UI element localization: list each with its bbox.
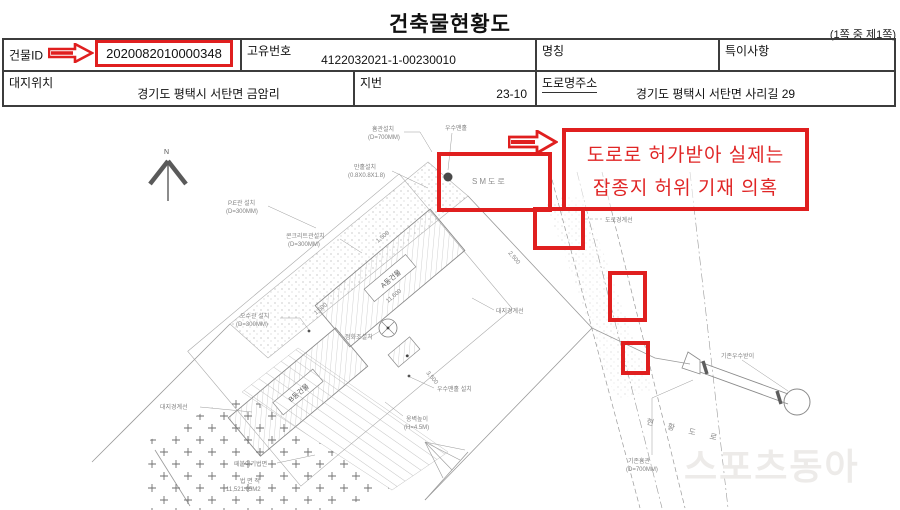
exist-hume-label: 기존흄관 bbox=[628, 457, 651, 465]
hume-pipe-dia: (D=700MM) bbox=[368, 135, 400, 141]
dim-label: 2,500 bbox=[506, 250, 521, 266]
wall-height-value: (H=4.5M) bbox=[404, 425, 429, 431]
remarks-label: 특이사항 bbox=[725, 42, 769, 59]
north-arrow bbox=[150, 161, 186, 201]
septic-pit bbox=[388, 337, 420, 367]
exist-inlet-label: 기존우수받이 bbox=[721, 352, 754, 360]
storm-manhole-label: 우수맨홀 bbox=[445, 124, 468, 132]
road-boundary-label: 도로경계선 bbox=[605, 216, 633, 224]
table-row: 대지위치 경기도 평택시 서탄면 금암리 지번 23-10 도로명주소 경기도 … bbox=[4, 72, 894, 105]
highlight-box-area-1 bbox=[533, 207, 585, 250]
watermark: 스포츠동아 bbox=[684, 438, 860, 490]
boundary-left-label: 대지경계선 bbox=[160, 403, 188, 411]
existing-pipe bbox=[682, 352, 810, 415]
area-value: 11,521.05M2 bbox=[226, 487, 261, 493]
annotation-box: 도로로 허가받아 실제는 잡종지 허위 기재 의혹 bbox=[562, 128, 809, 211]
highlight-box-area-2 bbox=[608, 271, 647, 322]
septic-label: 정화조설치 bbox=[345, 333, 373, 341]
pe-pipe-label: P.E관 설치 bbox=[228, 199, 255, 207]
conc-pipe-dia: (D=300MM) bbox=[288, 242, 320, 248]
road-address-value: 경기도 평택시 서탄면 사리길 29 bbox=[537, 85, 894, 102]
red-arrow-id bbox=[48, 43, 94, 63]
manhole-size-label: (0.8X0.8X1.8) bbox=[348, 173, 385, 179]
north-label: N bbox=[164, 149, 169, 156]
pe-pipe-dia: (D=300MM) bbox=[226, 209, 258, 215]
sewer-pipe-dia: (D=300MM) bbox=[236, 322, 268, 328]
cell-unique-no: 고유번호 4122032021-1-00230010 bbox=[242, 40, 537, 70]
dim-label: 3,500 bbox=[424, 370, 439, 386]
highlight-box-building-id: 2020082010000348 bbox=[95, 40, 233, 67]
jibun-value: 23-10 bbox=[496, 87, 527, 101]
unique-no-value: 4122032021-1-00230010 bbox=[242, 53, 535, 67]
highlight-box-area-3 bbox=[621, 341, 650, 375]
cell-name: 명칭 bbox=[537, 40, 720, 70]
conc-pipe-label: 콘크리트관설치 bbox=[286, 232, 325, 240]
exist-hume-dia: (D=700MM) bbox=[626, 467, 658, 473]
highlight-box-sm-road bbox=[437, 152, 552, 212]
cell-road-address: 도로명주소 경기도 평택시 서탄면 사리길 29 bbox=[537, 72, 894, 105]
name-label: 명칭 bbox=[542, 42, 564, 59]
wall-height-label: 옹벽높이 bbox=[406, 415, 428, 423]
area-label: 법 면 적 bbox=[240, 477, 260, 485]
hume-pipe-label: 흄관설치 bbox=[372, 125, 394, 133]
cell-remarks: 특이사항 bbox=[720, 40, 894, 70]
storm-manhole-install-label: 우수맨홀 설치 bbox=[437, 385, 472, 393]
slope-label: 떼붙이기법면 bbox=[234, 460, 267, 468]
site-location-value: 경기도 평택시 서탄면 금암리 bbox=[4, 85, 353, 102]
page-title: 건축물현황도 bbox=[0, 8, 900, 38]
building-id-value: 2020082010000348 bbox=[106, 46, 222, 61]
building-status-document: 건축물현황도 (1쪽 중 제1쪽) 건물ID 고유번호 4122032021-1… bbox=[0, 0, 900, 510]
manhole-dot-2 bbox=[408, 375, 411, 378]
pipe-dot bbox=[308, 330, 311, 333]
annotation-line1: 도로로 허가받아 실제는 bbox=[587, 140, 784, 167]
manhole-install-label: 만홀설치 bbox=[354, 163, 376, 171]
septic-tank-symbol bbox=[379, 319, 397, 337]
sewer-pipe-label: 오수관 설치 bbox=[240, 312, 269, 320]
cell-site-location: 대지위치 경기도 평택시 서탄면 금암리 bbox=[4, 72, 355, 105]
annotation-line2: 잡종지 허위 기재 의혹 bbox=[593, 173, 778, 200]
cell-jibun: 지번 23-10 bbox=[355, 72, 537, 105]
building-id-label: 건물ID bbox=[9, 47, 43, 64]
jibun-label: 지번 bbox=[360, 74, 382, 91]
boundary-right-label: 대지경계선 bbox=[496, 307, 524, 315]
red-arrow-annotation bbox=[508, 130, 558, 154]
